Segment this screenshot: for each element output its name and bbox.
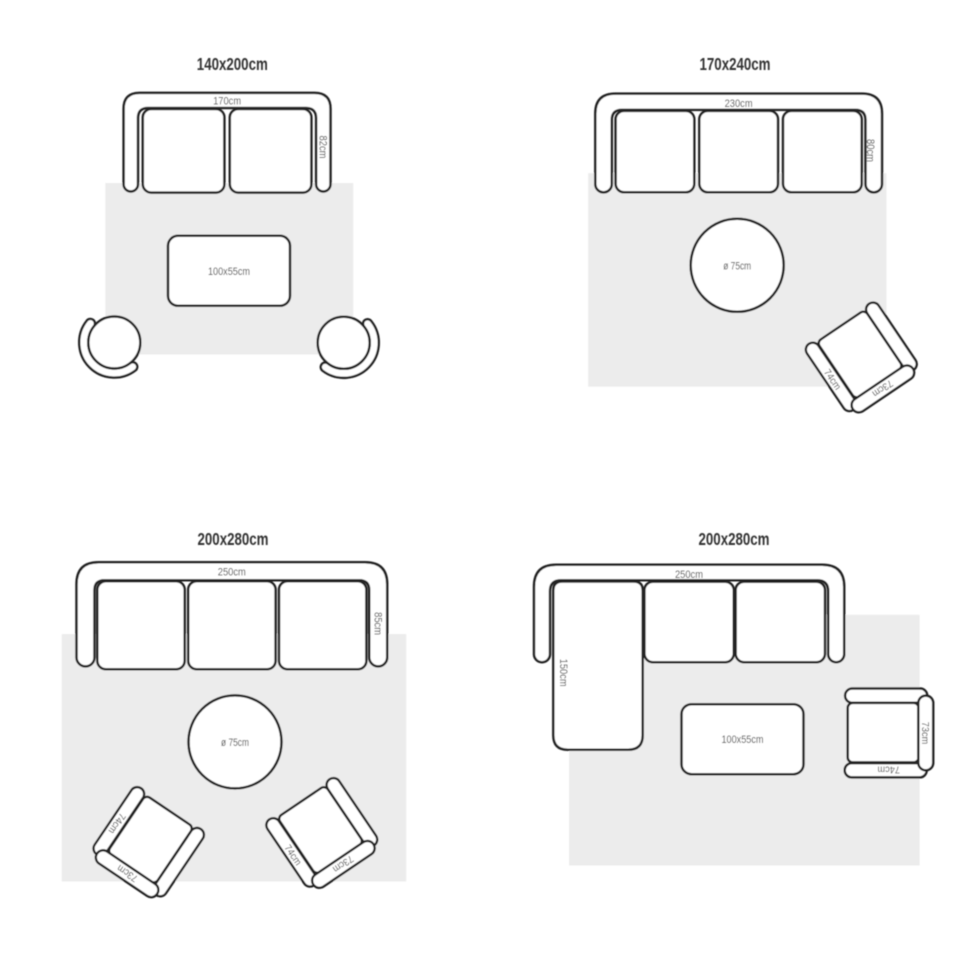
svg-text:200x280cm: 200x280cm [699, 529, 770, 549]
svg-text:85cm: 85cm [371, 612, 383, 635]
svg-text:ø 75cm: ø 75cm [221, 737, 249, 749]
svg-text:ø 75cm: ø 75cm [723, 260, 751, 272]
svg-text:100x55cm: 100x55cm [722, 734, 764, 746]
svg-text:230cm: 230cm [725, 98, 753, 110]
svg-text:73cm: 73cm [919, 722, 930, 745]
svg-text:200x280cm: 200x280cm [198, 529, 269, 549]
svg-text:140x200cm: 140x200cm [197, 54, 268, 74]
svg-text:100x55cm: 100x55cm [208, 266, 250, 278]
svg-text:250cm: 250cm [675, 569, 703, 581]
svg-text:74cm: 74cm [877, 764, 900, 775]
svg-text:170cm: 170cm [213, 95, 241, 107]
svg-text:82cm: 82cm [316, 136, 328, 159]
svg-text:80cm: 80cm [864, 139, 876, 162]
svg-text:150cm: 150cm [557, 659, 569, 687]
svg-text:250cm: 250cm [218, 566, 246, 578]
svg-text:170x240cm: 170x240cm [700, 54, 771, 74]
